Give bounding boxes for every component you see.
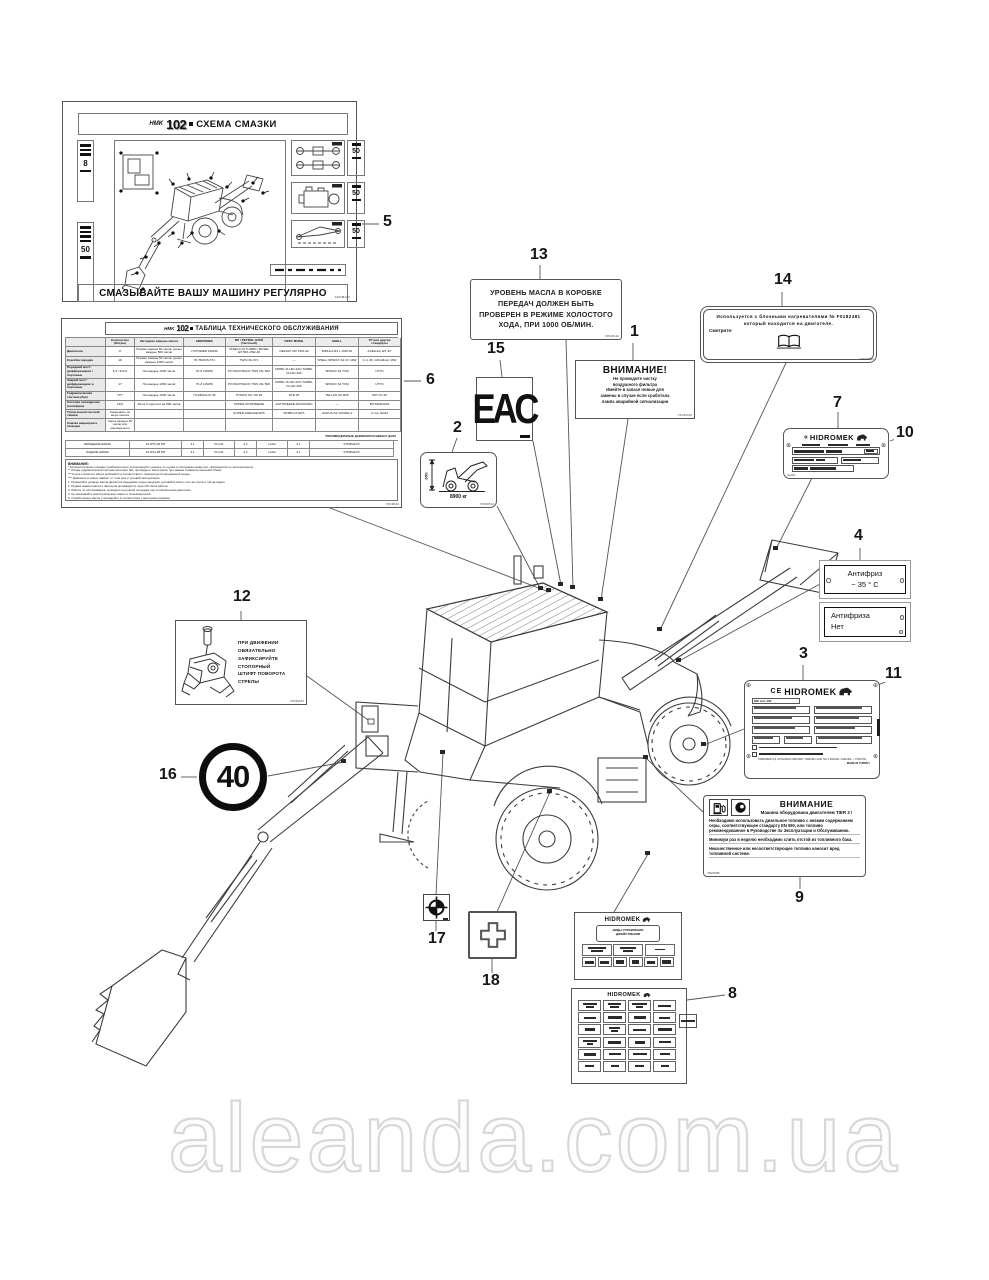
elephant-logo-icon — [838, 686, 853, 697]
callout-12: 12 — [231, 589, 253, 605]
label-code: Y05/30495 — [707, 872, 720, 875]
lift-height-dim: 385 — [425, 472, 429, 480]
lift-weight: 8900 кг — [425, 494, 492, 500]
gearbox-oil-note-label: УРОВЕНЬ МАСЛА В КОРОБКЕПЕРЕДАЧ ДОЛЖЕН БЫ… — [470, 279, 622, 340]
label-code: HL/001 — [787, 474, 795, 477]
machine-type-field: HM тип: 102 — [752, 698, 800, 704]
fuel-pump-icon — [709, 799, 728, 816]
callout-3: 3 — [797, 646, 810, 662]
engine-lube-interval: 50 — [347, 182, 365, 214]
pattern-columns-wrap — [575, 998, 683, 1072]
control-pattern-box: ВИДЫ УПРАВЛЕНИЯ ДЖОЙСТИКАМИ — [596, 925, 660, 942]
warning-title: ВНИМАНИЕ — [753, 799, 860, 809]
rivet-icon: ⊕ — [746, 754, 751, 760]
interval-hours: 50 — [352, 148, 360, 155]
antifreeze-none-plate-frame: Антифриза Нет — [819, 602, 911, 642]
notes-starred: * Количество масел указано приблизительн… — [68, 466, 395, 481]
label-code: Y06/M102 — [386, 503, 399, 506]
pattern-header-cells — [578, 944, 678, 956]
lube-interval-8h: 8 — [77, 140, 94, 202]
brand-text: HIDROMEK — [607, 992, 640, 998]
interval-hours: 50 — [352, 190, 360, 197]
block-heater-note-label: Используется с блочными нагревателями № … — [700, 306, 877, 363]
code-mark — [443, 918, 448, 920]
callout-6: 6 — [424, 372, 437, 388]
axle-lube-interval: 50 — [347, 140, 365, 176]
rivet-icon: ⊕ — [786, 443, 791, 449]
page: { "watermark": "aleanda.com.ua", "callou… — [0, 0, 989, 1280]
rivet-icon: ⊕ — [873, 754, 878, 760]
elephant-logo-icon — [856, 433, 868, 442]
callout-4: 4 — [852, 528, 865, 544]
first-aid-mark — [468, 911, 517, 959]
eac-text: EAC — [473, 385, 537, 433]
fuel-warning-label: ВНИМАНИЕ Машина оборудована двигателем T… — [703, 795, 866, 877]
label-code: A02/M102 — [335, 295, 350, 299]
model-text: 102 — [176, 324, 188, 333]
label-code: Y05/30643 — [290, 700, 304, 703]
antifreeze-plate: Антифриз − 35 ° C — [824, 565, 906, 594]
antifreeze-plate-frame: Антифриз − 35 ° C — [819, 560, 911, 599]
maintenance-title-text: ТАБЛИЦА ТЕХНИЧЕСКОГО ОБСЛУЖИВАНИЯ — [195, 326, 339, 332]
pattern-columns — [575, 1000, 676, 1072]
logo-square-icon — [189, 122, 193, 126]
lube-bottom-slogan: СМАЗЫВАЙТЕ ВАШУ МАШИНУ РЕГУЛЯРНО — [78, 284, 348, 302]
callout-13: 13 — [528, 247, 550, 263]
maintenance-title: HMK102ТАБЛИЦА ТЕХНИЧЕСКОГО ОБСЛУЖИВАНИЯ — [105, 322, 398, 335]
plate-field-row — [752, 736, 872, 744]
interval-hours: 50 — [81, 246, 90, 254]
control-pattern-plate-bottom: HIDROMEK — [571, 988, 687, 1084]
callout-14: 14 — [772, 272, 794, 288]
boom-lube-detail — [291, 220, 345, 248]
callout-2: 2 — [451, 420, 464, 436]
crosshair-icon — [424, 895, 449, 920]
serial-plate-main: ⊕ ⊕ ⊕ ⊕ CE HIDROMEK HM тип: 102 HIDROMEK… — [744, 680, 880, 779]
callout-16: 16 — [157, 767, 179, 783]
lock-note-text: ПРИ ДВИЖЕНИИ ОБЯЗАТЕЛЬНОЗАФИКСИРУЙТЕ СТО… — [238, 625, 302, 700]
axle-lube-detail — [291, 140, 345, 176]
lock-pin-sketch — [180, 625, 238, 699]
lube-legend-bar — [270, 264, 346, 276]
interval-hours: 50 — [352, 228, 360, 235]
made-in: MADE IN TURKEY — [752, 762, 870, 765]
callout-9: 9 — [793, 890, 806, 906]
antifreeze-text-2: Антифриза — [831, 610, 899, 621]
model-text: 102 — [166, 117, 186, 132]
warning-body: Необходимо использовать дизельное топлив… — [709, 818, 860, 859]
heater-note-inner: Используется с блочными нагревателями № … — [703, 309, 874, 360]
lubrication-chart-label: HMK102СХЕМА СМАЗКИ 8 50 — [62, 101, 357, 302]
plate-field-row — [792, 457, 880, 464]
heater-note-line2: который находится на двигателе. — [709, 321, 868, 328]
eac-code-mark — [520, 435, 530, 438]
speed-value: 40 — [217, 759, 249, 795]
warning-title: ВНИМАНИЕ! — [576, 365, 694, 376]
ce-mark: CE — [771, 688, 783, 695]
brand-text: HMK — [164, 326, 174, 331]
brand-text: HMK — [149, 121, 163, 127]
pattern-icon-cells — [578, 957, 678, 967]
lube-chart-title: HMK102СХЕМА СМАЗКИ — [78, 113, 348, 135]
logo-square-icon — [190, 327, 193, 330]
label-code: Y05/30502 — [860, 358, 874, 361]
rivet-icon: ⊕ — [873, 683, 878, 689]
control-pattern-plate-top: HIDROMEK ВИДЫ УПРАВЛЕНИЯ ДЖОЙСТИКАМИ — [574, 912, 682, 980]
heater-note-see: Смотрите: — [709, 328, 868, 333]
maintenance-table-label: HMK102ТАБЛИЦА ТЕХНИЧЕСКОГО ОБСЛУЖИВАНИЯ … — [61, 318, 402, 508]
warning-body: Не проводите чисткувоздушного фильтраИме… — [576, 376, 694, 404]
manual-book-icon — [709, 334, 868, 349]
plate-field-row — [752, 716, 872, 724]
lube-machine-sketch — [114, 140, 286, 302]
logo-chevrons: « — [804, 434, 808, 441]
control-pattern-line2: ДЖОЙСТИКАМИ — [616, 933, 640, 937]
plate-field-row — [792, 447, 880, 455]
maintenance-grid: Количество (Литры)Интервал замены маслаH… — [65, 337, 398, 432]
callout-5: 5 — [381, 214, 394, 230]
maintenance-notes: ВНИМАНИЕ: * Количество масел указано при… — [65, 459, 398, 501]
label-code: Y05/30445 — [678, 414, 692, 417]
antifreeze-temp: − 35 ° C — [831, 579, 899, 590]
lift-capacity-label: 385 8900 кг Y05/30513 — [420, 452, 497, 508]
brand-text: HIDROMEK — [605, 917, 641, 923]
plate-field-captions — [792, 444, 880, 446]
rivet-icon: ⊕ — [746, 683, 751, 689]
tire-table: ПЕРЕДНИЕ ШИНЫ16.9/70-30 PR3.1PCL414.4LAS… — [65, 440, 398, 457]
warning-subtitle: Машина оборудована двигателем TIER 3 ! — [753, 810, 860, 815]
plate-checkbox-row — [752, 752, 872, 757]
label-code: Y05/30513 — [480, 503, 494, 506]
rivet-icon: ⊕ — [881, 443, 886, 449]
antifreeze-text-1: Антифриз — [831, 568, 899, 579]
boom-lock-note-label: ПРИ ДВИЖЕНИИ ОБЯЗАТЕЛЬНОЗАФИКСИРУЙТЕ СТО… — [175, 620, 307, 705]
callout-15: 15 — [485, 341, 507, 357]
pattern-side-box — [679, 1014, 697, 1028]
callout-10: 10 — [894, 425, 916, 441]
brand-text: HIDROMEK — [810, 433, 854, 442]
callout-1: 1 — [628, 324, 641, 340]
callout-8: 8 — [726, 986, 739, 1002]
callout-18: 18 — [480, 973, 502, 989]
lube-chart-title-text: СХЕМА СМАЗКИ — [196, 119, 276, 130]
elephant-logo-icon — [643, 992, 651, 998]
brand-text: HIDROMEK — [784, 687, 836, 697]
lift-capacity-sketch: 385 — [425, 456, 493, 494]
interval-hours: 8 — [83, 160, 87, 168]
hidromek-logo: HIDROMEK — [578, 916, 678, 923]
heater-note-line1: Используется с блочными нагревателями № … — [709, 314, 868, 321]
label-code: Y05/30116 — [605, 335, 619, 338]
plate-field-row — [752, 726, 872, 734]
cross-icon — [476, 918, 510, 952]
air-filter-warning-label: ВНИМАНИЕ! Не проводите чисткувоздушного … — [575, 360, 695, 419]
engine-lube-detail — [291, 182, 345, 214]
antifreeze-none-plate: Антифриза Нет — [824, 607, 906, 637]
notes-numbered: 1. Проверяйте уровень масла двигателя еж… — [68, 481, 395, 502]
elephant-logo-icon — [642, 916, 651, 923]
hidromek-logo: « HIDROMEK — [792, 433, 880, 442]
callout-7: 7 — [831, 395, 844, 411]
eac-conformity-mark: EAC — [476, 377, 533, 441]
low-sulphur-icon — [731, 799, 750, 816]
antifreeze-none: Нет — [831, 621, 899, 632]
plate-checkbox-row — [752, 745, 872, 750]
callout-17: 17 — [426, 931, 448, 947]
plate-field-row — [752, 706, 872, 714]
callout-11: 11 — [883, 666, 904, 682]
speed-limit-sign: 40 — [199, 743, 267, 811]
hidromek-logo: CE HIDROMEK — [752, 686, 872, 697]
tire-pressure-title: РЕКОМЕНДУЕМЫЕ ДАВЛЕНИЯ В ШИНАХ (БАР) — [65, 434, 396, 438]
lifting-point-mark — [423, 894, 450, 921]
plate-side-tab — [877, 719, 881, 736]
boom-lube-interval: 50 — [347, 220, 365, 248]
serial-plate-small: ⊕ ⊕ « HIDROMEK HL/001 — [783, 428, 889, 479]
plate-field-row — [792, 465, 854, 472]
